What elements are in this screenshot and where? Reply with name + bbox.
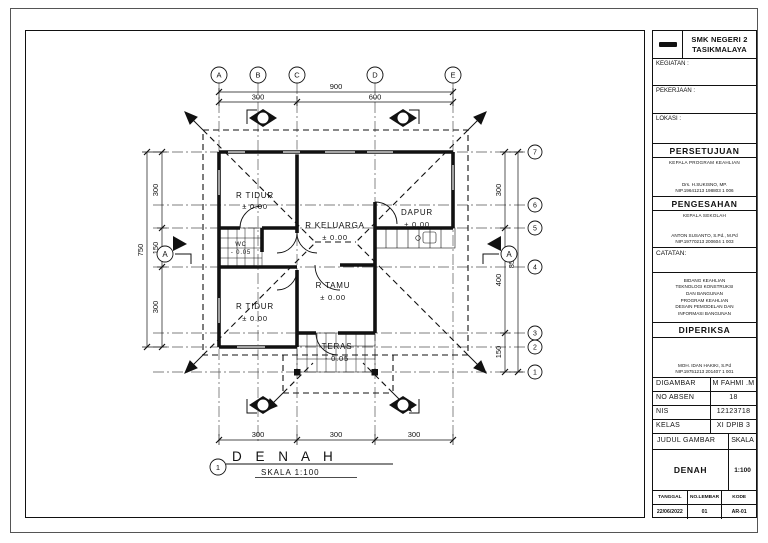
diperiksa-header: DIPERIKSA — [653, 323, 756, 338]
room-labels: R TIDUR ± 0.00 R KELUARGA ± 0.00 DAPUR ±… — [231, 191, 433, 363]
dim-right-1: 300 — [494, 184, 503, 197]
room-keluarga-name: R KELUARGA — [305, 221, 365, 230]
room-dapur-name: DAPUR — [401, 208, 433, 217]
section-letter-right: A — [506, 250, 512, 259]
dim-bottom-3: 300 — [408, 430, 421, 439]
bidang-line: DAN BANGUNAN — [686, 291, 723, 298]
kelas-label: KELAS — [653, 420, 711, 433]
bidang-line: BIDANG KEAHLIAN — [684, 278, 726, 285]
room-teras-elev: - 0.05 — [325, 354, 349, 363]
drawing-sheet: { "title_block": { "school_line1": "SMK … — [0, 0, 768, 543]
room-tidur-bawah-elev: ± 0.00 — [242, 314, 268, 323]
room-keluarga-elev: ± 0.00 — [322, 233, 348, 242]
room-dapur-elev: ± 0.00 — [404, 220, 430, 229]
grid-row-7: 7 — [533, 150, 537, 157]
grid-row-1: 1 — [533, 370, 537, 377]
dim-bottom-1: 300 — [252, 430, 265, 439]
dim-top-overall: 900 — [330, 82, 343, 91]
kode-label: KODE — [722, 491, 756, 504]
kegiatan-label: KEGIATAN : — [653, 59, 756, 67]
dim-right-3: 150 — [494, 346, 503, 359]
view-marker-bottom-right — [389, 396, 419, 414]
digambar-row: DIGAMBAR M FAHMI .M — [653, 378, 756, 392]
bidang-line: PROGRAM KEAHLIAN — [681, 298, 729, 305]
dim-top-1: 300 — [252, 93, 265, 102]
room-wc-elev: - 0.05 — [231, 250, 251, 256]
grid-row-5: 5 — [533, 226, 537, 233]
pekerjaan-label: PEKERJAAN : — [653, 86, 756, 94]
lokasi-box: LOKASI : — [653, 114, 756, 144]
grid-col-e: E — [450, 71, 455, 80]
room-teras-name: TERAS — [322, 342, 353, 351]
kelas-value: XI DPIB 3 — [711, 420, 756, 433]
bidang-line: DESAIN PEMODELAN DAN — [675, 304, 733, 311]
plan-title-number: 1 — [216, 463, 220, 472]
room-tamu-name: R TAMU — [316, 281, 351, 290]
room-tidur-bawah-name: R TIDUR — [236, 302, 274, 311]
floor-plan-drawing: 900 300 600 300 300 300 750 300 150 300 … — [25, 30, 643, 516]
pengesahan-box: KEPALA SEKOLAH ANTON SUSANTO, S.Pd., M.P… — [653, 211, 756, 248]
bidang-line: TEKNOLOGI KONSTRUKSI — [676, 284, 734, 291]
judul-gambar-header: JUDUL GAMBAR SKALA — [653, 434, 756, 450]
view-marker-top-left — [247, 109, 277, 127]
digambar-label: DIGAMBAR — [653, 378, 711, 391]
dim-bottom-2: 300 — [330, 430, 343, 439]
grid-bubbles-right: 7 6 5 4 3 2 1 — [528, 145, 542, 379]
kegiatan-box: KEGIATAN : — [653, 59, 756, 86]
grid-row-6: 6 — [533, 203, 537, 210]
grid-row-3: 3 — [533, 331, 537, 338]
no-absen-value: 18 — [711, 392, 756, 405]
skala-label: SKALA — [729, 434, 756, 449]
no-absen-label: NO ABSEN — [653, 392, 711, 405]
kelas-row: KELAS XI DPIB 3 — [653, 420, 756, 434]
plan-title-scale: SKALA 1:100 — [261, 468, 320, 477]
catatan-box: CATATAN: — [653, 248, 756, 273]
lokasi-label: LOKASI : — [653, 114, 756, 122]
diperiksa-box: MOH. IDAN HAKIKI, S.Pd NIP.19751213 2014… — [653, 338, 756, 378]
tanggal-value: 22/06/2022 — [653, 505, 688, 519]
kitchen-counter — [375, 228, 455, 248]
dim-top-2: 600 — [369, 93, 382, 102]
view-marker-top-right — [389, 109, 419, 127]
judul-value: DENAH — [653, 450, 729, 490]
nis-row: NIS 12123718 — [653, 406, 756, 420]
dim-right-2: 400 — [494, 274, 503, 287]
persetujuan-header: PERSETUJUAN — [653, 144, 756, 158]
grid-row-4: 4 — [533, 265, 537, 272]
persetujuan-nip: NIP.19641213 198803 1 006 — [653, 188, 756, 194]
title-block: SMK NEGERI 2 TASIKMALAYA KEGIATAN : PEKE… — [652, 30, 757, 518]
room-wc-name: WC — [235, 242, 247, 248]
pengesahan-role: KEPALA SEKOLAH — [653, 211, 756, 218]
tanggal-label: TANGGAL — [653, 491, 688, 504]
title-block-header: SMK NEGERI 2 TASIKMALAYA — [653, 31, 756, 59]
grid-col-d: D — [372, 71, 378, 80]
footer-value-row: 22/06/2022 01 AR-01 — [653, 505, 756, 519]
no-lembar-value: 01 — [688, 505, 723, 519]
school-name-line1: SMK NEGERI 2 — [691, 35, 747, 45]
no-lembar-label: NO.LEMBAR — [688, 491, 723, 504]
grid-lines — [153, 83, 527, 442]
section-mark-right: A — [483, 236, 517, 264]
diperiksa-nip: NIP.19751213 201407 1 001 — [653, 369, 756, 375]
pekerjaan-box: PEKERJAAN : — [653, 86, 756, 114]
no-absen-row: NO ABSEN 18 — [653, 392, 756, 406]
grid-col-c: C — [294, 71, 300, 80]
view-marker-bottom-left — [247, 396, 277, 414]
section-letter-left: A — [162, 250, 168, 259]
pengesahan-nip: NIP.19770213 200604 1 003 — [653, 239, 756, 245]
bidang-keahlian-box: BIDANG KEAHLIAN TEKNOLOGI KONSTRUKSI DAN… — [653, 273, 756, 323]
digambar-value: M FAHMI .M — [711, 378, 756, 391]
nis-label: NIS — [653, 406, 711, 419]
grid-row-2: 2 — [533, 345, 537, 352]
room-tidur-atas-name: R TIDUR — [236, 191, 274, 200]
persetujuan-box: KEPALA PROGRAM KEAHLIAN Drs. H.SUKISNO, … — [653, 158, 756, 197]
roof-slope-arrows — [185, 112, 486, 411]
skala-value: 1:100 — [729, 450, 756, 490]
grid-bubbles-top: A B C D E — [211, 67, 461, 83]
grid-col-b: B — [255, 71, 260, 80]
school-name-line2: TASIKMALAYA — [692, 45, 747, 55]
dim-left-overall: 750 — [136, 244, 145, 257]
judul-gambar-body: DENAH 1:100 — [653, 450, 756, 491]
teras-tiles — [297, 333, 375, 372]
plan-title: 1 D E N A H SKALA 1:100 — [210, 449, 393, 478]
dim-left-3: 300 — [151, 301, 160, 314]
pengesahan-header: PENGESAHAN — [653, 197, 756, 211]
dimension-labels: 900 300 600 300 300 300 750 300 150 300 … — [136, 82, 516, 439]
kode-value: AR-01 — [722, 505, 756, 519]
grid-col-a: A — [216, 71, 221, 80]
dim-left-1: 300 — [151, 184, 160, 197]
bidang-line: INFORMASI BANGUNAN — [678, 311, 731, 318]
catatan-label: CATATAN: — [653, 248, 756, 257]
dimension-lines — [142, 88, 523, 445]
nis-value: 12123718 — [711, 406, 756, 419]
judul-gambar-label: JUDUL GAMBAR — [653, 434, 729, 449]
persetujuan-role: KEPALA PROGRAM KEAHLIAN — [653, 158, 756, 165]
plan-title-text: D E N A H — [232, 449, 338, 464]
dimension-ticks — [144, 89, 521, 443]
room-tamu-elev: ± 0.00 — [320, 293, 346, 302]
school-logo — [653, 31, 683, 58]
footer-header-row: TANGGAL NO.LEMBAR KODE — [653, 491, 756, 505]
room-tidur-atas-elev: ± 0.00 — [242, 202, 268, 211]
